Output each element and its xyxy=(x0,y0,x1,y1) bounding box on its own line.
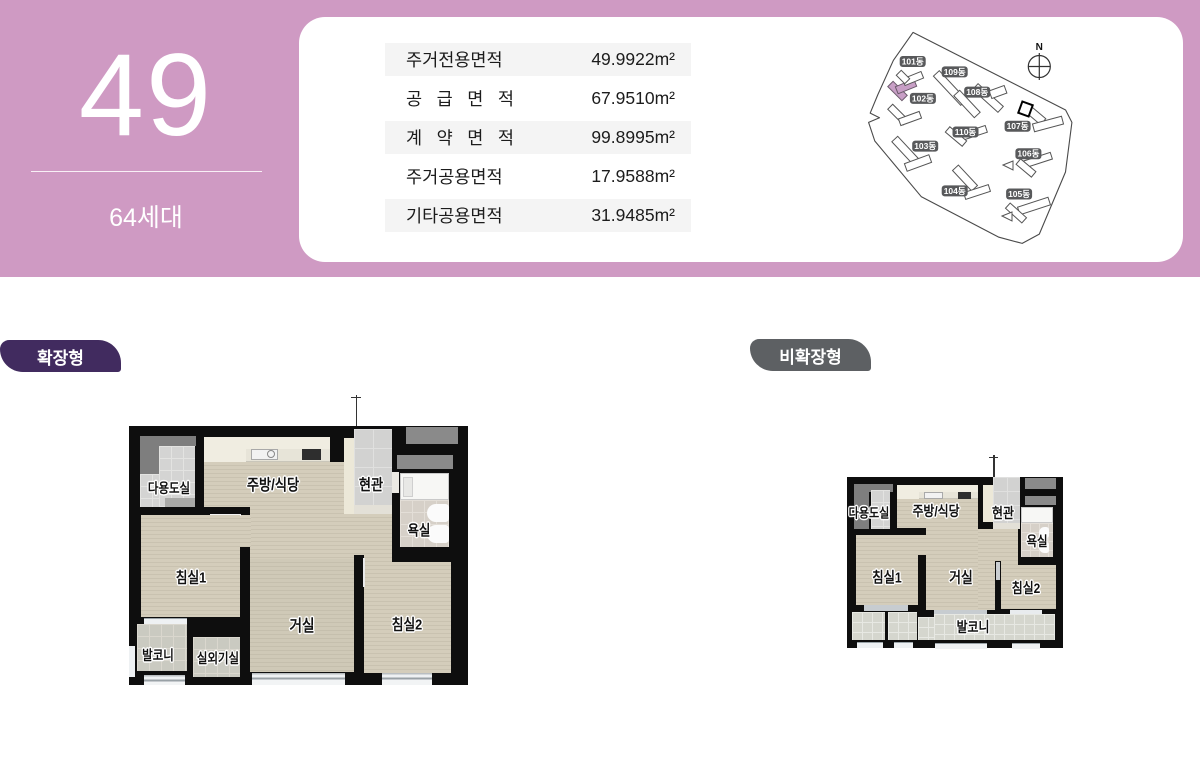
svg-text:104동: 104동 xyxy=(944,186,966,196)
svg-text:106동: 106동 xyxy=(1017,149,1039,159)
svg-text:107동: 107동 xyxy=(1007,121,1029,131)
svg-text:109동: 109동 xyxy=(944,67,966,77)
svg-text:105동: 105동 xyxy=(1008,189,1030,199)
svg-text:102동: 102동 xyxy=(912,93,934,103)
svg-text:101동: 101동 xyxy=(902,57,924,67)
svg-text:103동: 103동 xyxy=(914,141,936,151)
svg-text:N: N xyxy=(1036,42,1043,53)
svg-text:110동: 110동 xyxy=(955,127,977,137)
svg-text:108동: 108동 xyxy=(966,87,988,97)
